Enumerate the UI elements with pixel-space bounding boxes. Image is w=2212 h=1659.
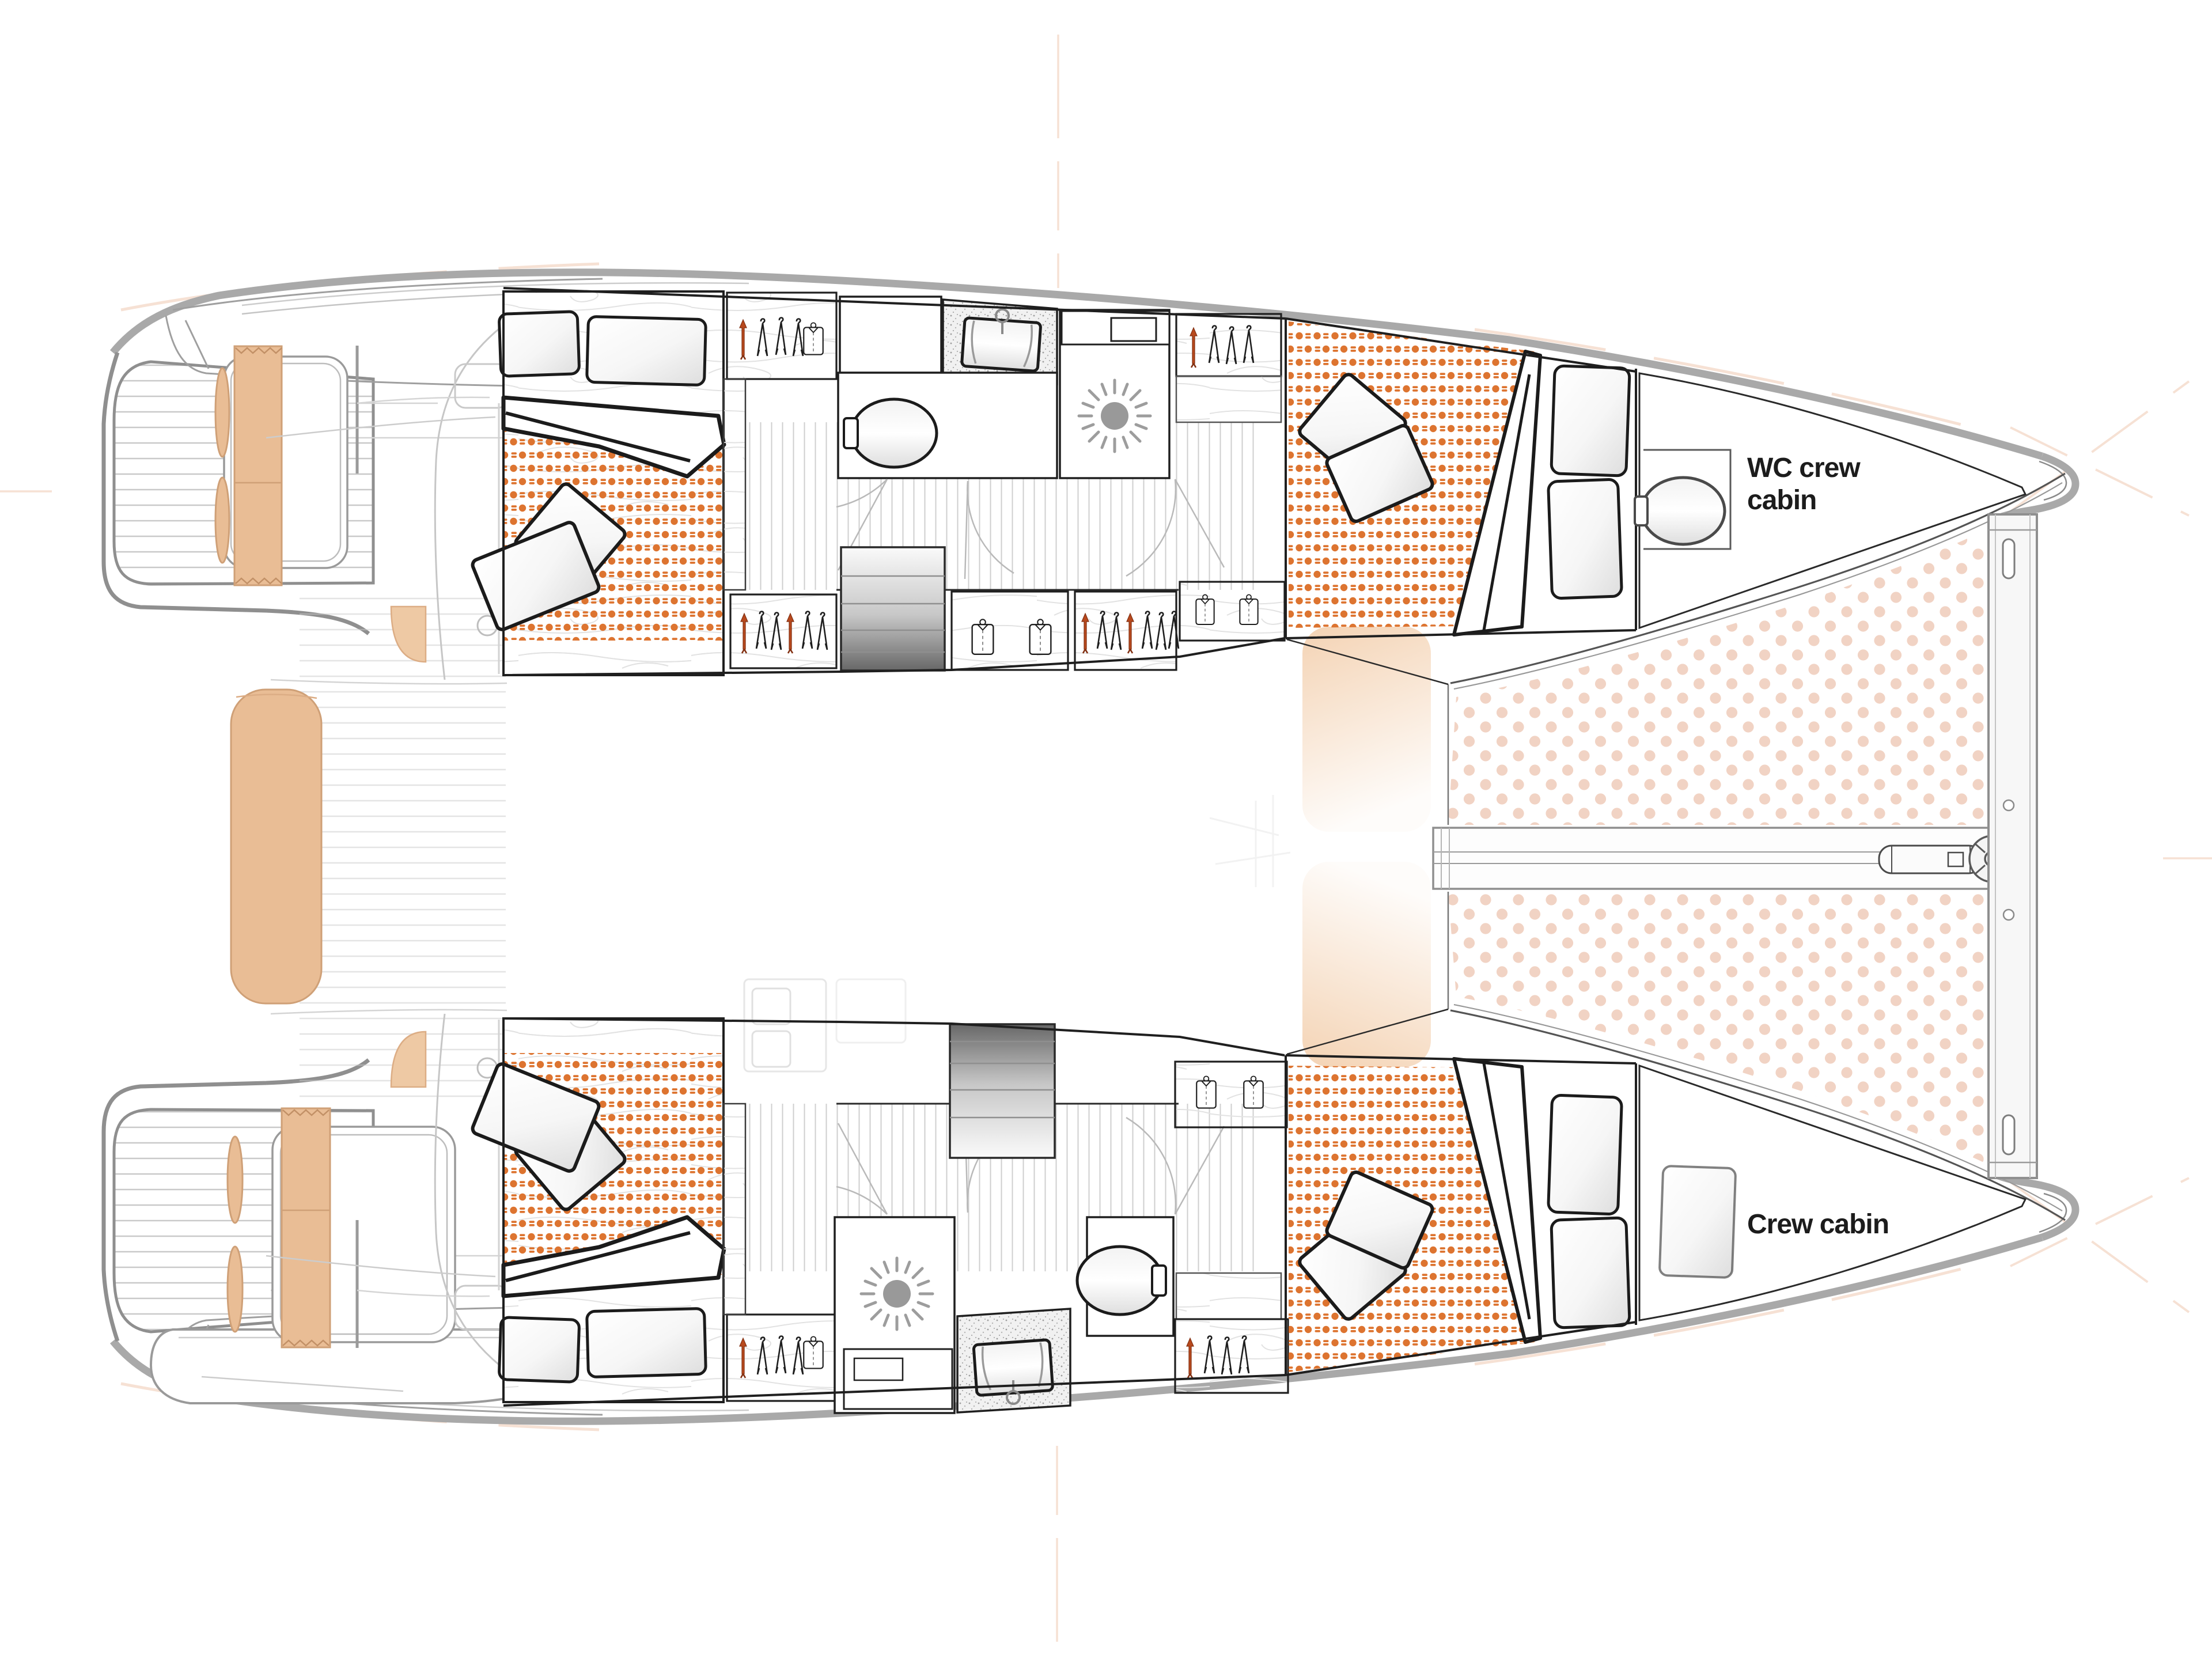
svg-text:WC crew: WC crew (1747, 453, 1861, 483)
svg-text:cabin: cabin (1747, 485, 1816, 516)
svg-text:Crew cabin: Crew cabin (1747, 1209, 1889, 1240)
